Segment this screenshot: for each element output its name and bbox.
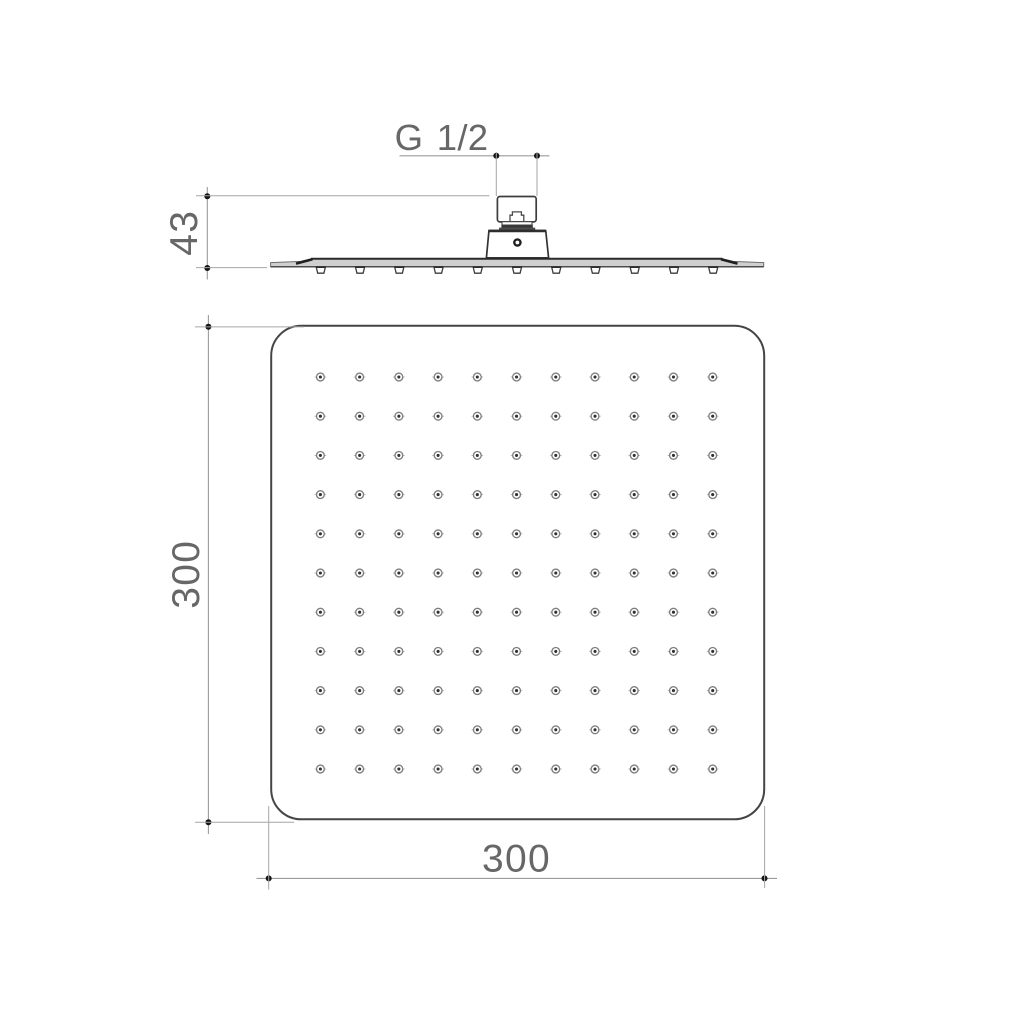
svg-text:300: 300: [165, 540, 208, 609]
svg-text:G 1/2: G 1/2: [395, 117, 489, 158]
svg-text:300: 300: [482, 837, 551, 880]
svg-text:43: 43: [163, 210, 206, 256]
